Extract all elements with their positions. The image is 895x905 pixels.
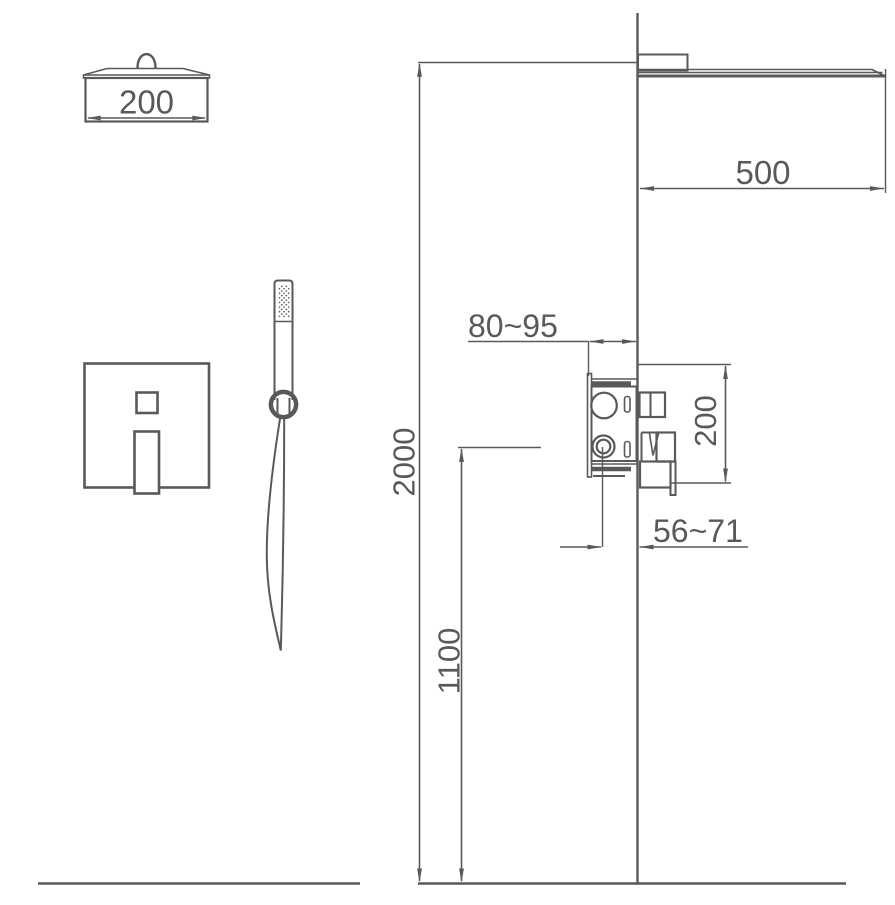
dim-shower-height: 2000 [387, 63, 638, 883]
valve-trim-side-view [640, 393, 676, 496]
arrowhead-down [417, 869, 422, 883]
dim-rough-in-depth: 80~95 [468, 308, 636, 376]
ceiling-bracket [638, 55, 688, 71]
valve-lower-port-inner [597, 440, 611, 454]
diverter-knob-side [640, 393, 666, 418]
concealed-valve-side-view [588, 374, 637, 548]
drawing-canvas: 200 500 2000 [0, 0, 895, 905]
hand-shower [267, 281, 296, 651]
arrowhead-up [459, 448, 464, 462]
dim-arm-projection: 500 [640, 154, 884, 191]
dim-trim-height: 200 [638, 365, 731, 484]
dim-label-rough-in-depth: 80~95 [468, 308, 558, 344]
mixer-handle [135, 432, 160, 494]
arrowhead-right [622, 339, 636, 344]
hose-right-curve [281, 418, 284, 651]
holder-ring [271, 392, 296, 417]
hanger-hook [138, 54, 156, 68]
dim-label-trim-height: 200 [688, 395, 723, 447]
arrowhead-right [870, 186, 884, 191]
diverter-button [137, 393, 158, 414]
valve-slot-upper [625, 397, 631, 413]
handle-arm [657, 433, 676, 462]
dim-label-head-width: 200 [119, 84, 174, 121]
overhead-shower-front-view: 200 [84, 54, 210, 121]
mixer-valve-front-view [85, 364, 210, 494]
valve-slot-lower [625, 442, 631, 458]
arrowhead-left [87, 116, 101, 121]
dim-trim-projection: 56~71 [560, 513, 748, 549]
spray-face-dots [279, 285, 290, 317]
arrowhead-right [192, 116, 206, 121]
arrowhead-right-pointing [588, 545, 602, 550]
hose-left-curve [267, 418, 281, 651]
arrowhead-down [459, 869, 464, 883]
dim-label-shower-height: 2000 [387, 428, 422, 497]
handle-grip-bar [671, 462, 676, 496]
dim-label-arm-projection: 500 [735, 154, 790, 191]
dim-label-mixer-height: 1100 [432, 628, 467, 695]
handle-body [640, 462, 671, 488]
arrowhead-up [417, 63, 422, 77]
head-top-plate [84, 69, 210, 79]
dim-mixer-height: 1100 [432, 448, 542, 883]
arrowhead-left [640, 186, 654, 191]
valve-upper-port [591, 393, 617, 419]
arrowhead-left [590, 339, 604, 344]
dim-label-trim-projection: 56~71 [653, 513, 743, 549]
arrowhead-up [723, 365, 728, 379]
arrowhead-left-pointing [640, 545, 654, 550]
arrowhead-down [723, 469, 728, 483]
installation-diagram: 200 500 2000 [0, 0, 895, 905]
